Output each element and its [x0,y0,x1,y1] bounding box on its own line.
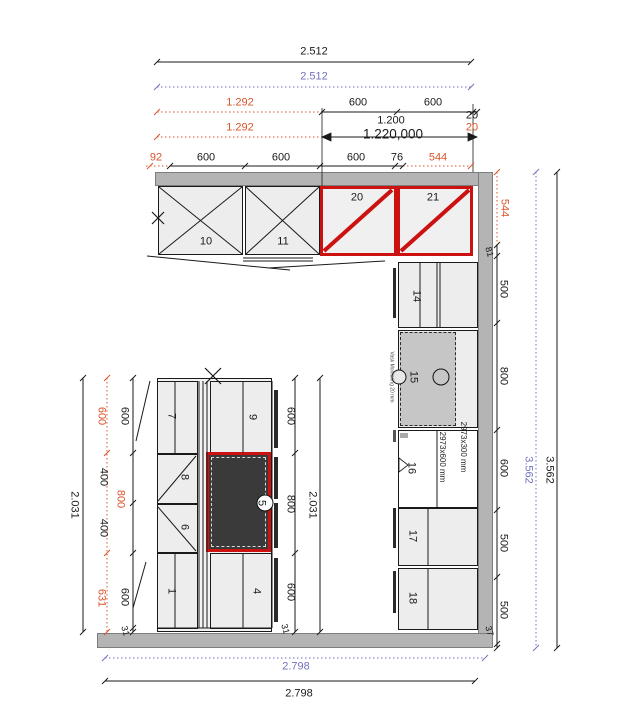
cabinet-7-label: 7 [166,413,177,419]
dim-top-1220000: 1.220,000 [363,127,423,141]
cabinet-8-label: 8 [179,474,190,480]
dim-left-600-black-a: 600 [119,407,130,425]
dim-right-total: 3.562 [544,456,555,484]
dim-top-600-b: 600 [424,98,442,109]
dim-mid-600-a: 600 [285,407,296,425]
dim-right-500-b: 500 [498,534,509,552]
cabinet-17-label: 17 [407,530,418,542]
dim-bottom-total-blue: 2.798 [282,662,310,673]
dim-top-1200: 1.200 [377,116,405,127]
cabinet-10-label: 10 [200,237,212,248]
wall-top [155,172,493,186]
dim-top-total-blue: 2.512 [300,72,328,83]
cabinet-20-label: 20 [351,193,363,204]
dim-right-total-blue: 3.562 [523,456,534,484]
dim-top-600-e: 600 [347,153,365,164]
cabinet-1-label: 1 [166,588,177,594]
dim-left-631-orange: 631 [96,589,107,607]
dim-top-76: 76 [391,153,403,164]
cabinet-7[interactable] [157,381,198,454]
cabinet-1[interactable] [157,553,198,629]
cabinet-16-label: 16 [406,462,417,474]
cabinet-4[interactable] [210,553,272,629]
cabinet-9-label: 9 [247,414,258,420]
kitchen-plan-drawing: 2.512 2.512 1.292 600 600 20 1.292 1.200… [0,0,629,728]
dim-left-400-a: 400 [98,468,109,486]
dim-left-total: 2.031 [69,491,80,519]
cabinet-4-label: 4 [251,588,262,594]
dim-mid-800: 800 [285,495,296,513]
dim-top-total: 2.512 [300,47,328,58]
dim-mid-total: 2.031 [307,491,318,519]
plan-linework [0,0,629,728]
sink-mounting-note: Vask Montering 20 mm [389,351,394,402]
dim-right-600: 600 [498,459,509,477]
wall-bottom [97,633,493,648]
dim-right-800: 800 [498,367,509,385]
dim-top-offset-20-orange: 20 [466,123,478,134]
dim-top-92: 92 [150,153,162,164]
dim-top-1292-b: 1.292 [226,123,254,134]
dim-top-1292-a: 1.292 [226,98,254,109]
cabinet-21-label: 21 [427,193,439,204]
dim-right-500-c: 500 [498,601,509,619]
cabinet-9[interactable] [210,381,272,454]
cabinet-18-label: 18 [407,592,418,604]
dim-bottom-total: 2.798 [285,689,313,700]
cabinet-14-label: 14 [411,290,422,302]
dim-left-400-b: 400 [98,519,109,537]
dim-top-600-a: 600 [349,98,367,109]
cabinet-5-label: 5 [256,500,267,506]
dim-left-800-orange: 800 [115,490,126,508]
dim-left-600-black-b: 600 [119,588,130,606]
cabinet-11-label: 11 [277,237,288,248]
dim-mid-600-b: 600 [285,583,296,601]
dim-right-544: 544 [499,199,510,217]
dim-top-offset-20-black: 20 [466,111,478,122]
panel-300-note: 2973x300 mm [459,422,467,473]
dim-top-544: 544 [429,153,447,164]
panel-600-note: 2973x600 mm [438,432,446,483]
dim-top-600-c: 600 [197,153,215,164]
wall-right [478,172,493,648]
cabinet-15-label: 15 [408,371,419,383]
dim-right-500-a: 500 [498,280,509,298]
dim-left-600-orange: 600 [96,407,107,425]
cabinet-8[interactable] [157,454,198,504]
dim-top-600-d: 600 [272,153,290,164]
cabinet-6[interactable] [157,504,198,553]
cabinet-6-label: 6 [179,524,190,530]
